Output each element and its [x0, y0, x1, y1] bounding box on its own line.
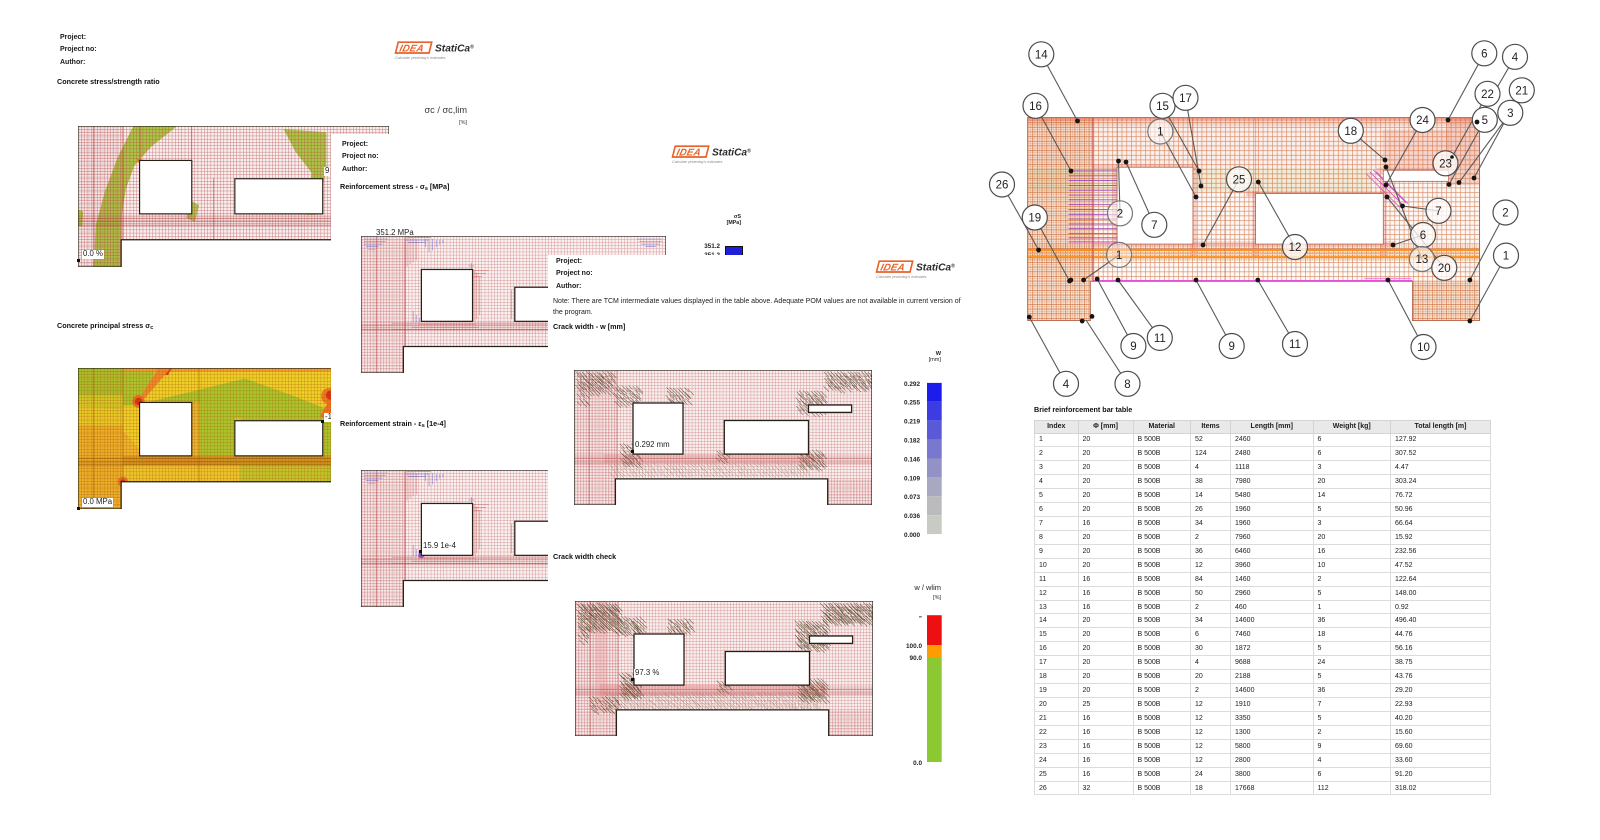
svg-text:10: 10	[1417, 342, 1430, 354]
svg-text:19: 19	[1028, 213, 1041, 225]
svg-text:8: 8	[1124, 379, 1130, 391]
svg-text:22: 22	[1481, 89, 1494, 101]
svg-text:12: 12	[1289, 242, 1302, 254]
svg-text:25: 25	[1233, 174, 1246, 186]
svg-text:24: 24	[1416, 115, 1429, 127]
svg-text:2: 2	[1502, 208, 1508, 220]
svg-text:18: 18	[1344, 126, 1357, 138]
svg-text:14: 14	[1035, 49, 1048, 61]
svg-text:16: 16	[1029, 101, 1042, 113]
svg-text:11: 11	[1289, 339, 1301, 351]
svg-text:6: 6	[1481, 48, 1487, 60]
svg-text:26: 26	[996, 180, 1009, 192]
svg-text:7: 7	[1435, 206, 1441, 218]
svg-text:7: 7	[1151, 220, 1157, 232]
svg-text:1: 1	[1503, 251, 1509, 263]
svg-text:17: 17	[1179, 93, 1192, 105]
svg-text:9: 9	[1130, 341, 1136, 353]
svg-text:13: 13	[1416, 254, 1429, 266]
svg-text:5: 5	[1482, 115, 1488, 127]
svg-text:21: 21	[1515, 85, 1528, 97]
svg-text:4: 4	[1512, 52, 1519, 64]
svg-text:1: 1	[1116, 250, 1122, 262]
svg-text:2: 2	[1117, 208, 1123, 220]
svg-text:6: 6	[1420, 230, 1426, 242]
svg-text:11: 11	[1154, 333, 1166, 345]
svg-text:9: 9	[1228, 341, 1234, 353]
svg-text:1: 1	[1157, 127, 1163, 139]
svg-text:20: 20	[1438, 263, 1451, 275]
svg-text:3: 3	[1507, 108, 1513, 120]
svg-text:23: 23	[1439, 158, 1452, 170]
svg-text:4: 4	[1063, 379, 1070, 391]
svg-text:15: 15	[1156, 101, 1169, 113]
